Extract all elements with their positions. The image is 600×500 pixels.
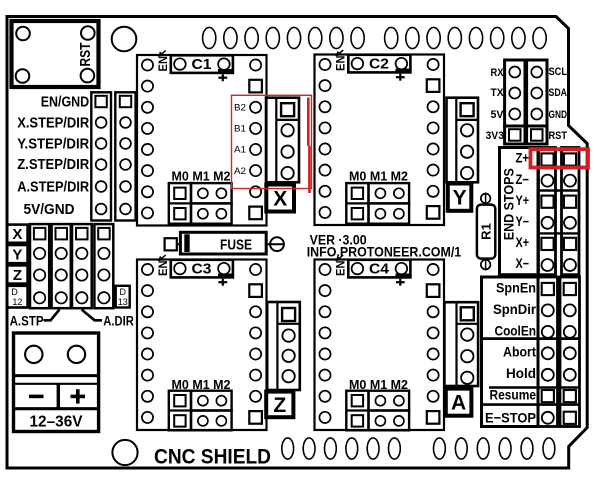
svg-text:GND: GND	[549, 109, 568, 121]
svg-text:12: 12	[12, 297, 22, 307]
svg-text:CoolEn: CoolEn	[495, 322, 537, 338]
svg-text:Z: Z	[13, 267, 22, 284]
svg-text:C1: C1	[192, 57, 212, 73]
svg-text:SDA: SDA	[549, 87, 568, 99]
svg-text:B1: B1	[234, 124, 246, 135]
svg-text:X: X	[12, 226, 22, 243]
svg-text:Abort: Abort	[503, 344, 536, 360]
svg-text:SpnEn: SpnEn	[496, 279, 536, 295]
svg-text:X: X	[273, 187, 287, 210]
svg-text:Hold: Hold	[506, 365, 536, 381]
svg-text:X+: X+	[516, 235, 530, 250]
svg-text:C2: C2	[369, 57, 389, 73]
svg-text:Y: Y	[453, 187, 467, 210]
svg-text:A.DIR: A.DIR	[103, 313, 134, 328]
svg-text:C4: C4	[369, 262, 389, 278]
svg-text:Resume: Resume	[490, 387, 537, 403]
svg-text:Y−: Y−	[516, 214, 530, 229]
svg-text:R1: R1	[479, 223, 494, 240]
svg-text:Z+: Z+	[516, 151, 530, 166]
svg-text:RST: RST	[77, 43, 94, 67]
svg-text:B2: B2	[234, 103, 246, 114]
svg-text:Z: Z	[273, 394, 286, 417]
svg-text:C3: C3	[192, 262, 212, 278]
svg-text:A.STEP/DIR: A.STEP/DIR	[17, 180, 89, 196]
svg-text:EN: EN	[336, 260, 348, 276]
svg-text:RST: RST	[549, 130, 568, 142]
svg-text:12–36V: 12–36V	[30, 413, 83, 430]
svg-text:INFO.PROTONEER.COM/1: INFO.PROTONEER.COM/1	[307, 244, 462, 260]
svg-text:D: D	[119, 287, 126, 297]
svg-text:Y: Y	[12, 246, 22, 263]
svg-text:5V/GND: 5V/GND	[24, 202, 75, 218]
svg-text:EN: EN	[158, 260, 170, 276]
svg-text:E−STOP: E−STOP	[485, 410, 536, 426]
svg-text:SCL: SCL	[549, 66, 568, 78]
svg-text:EN: EN	[158, 56, 170, 71]
svg-text:TX: TX	[491, 87, 505, 99]
svg-text:M0 M1 M2: M0 M1 M2	[349, 168, 408, 183]
svg-text:CNC SHIELD: CNC SHIELD	[154, 446, 271, 469]
svg-text:3V3: 3V3	[486, 130, 505, 142]
svg-text:Z.STEP/DIR: Z.STEP/DIR	[17, 157, 89, 173]
svg-text:Z−: Z−	[516, 172, 530, 187]
svg-text:X.STEP/DIR: X.STEP/DIR	[17, 116, 89, 132]
svg-text:13: 13	[118, 297, 128, 307]
svg-text:A.STP: A.STP	[10, 313, 44, 328]
svg-text:END STOPS: END STOPS	[501, 168, 517, 240]
svg-text:A1: A1	[234, 145, 246, 156]
svg-text:A2: A2	[234, 166, 246, 177]
svg-text:FUSE: FUSE	[220, 236, 252, 253]
svg-text:RX: RX	[491, 67, 505, 79]
svg-text:D: D	[11, 287, 18, 297]
svg-text:M0 M1 M2: M0 M1 M2	[172, 168, 231, 183]
svg-text:Y+: Y+	[516, 193, 530, 208]
svg-text:A: A	[451, 392, 466, 415]
svg-text:X−: X−	[516, 256, 530, 271]
svg-text:EN/GND: EN/GND	[41, 95, 90, 111]
svg-text:5V: 5V	[491, 109, 505, 121]
svg-text:Y.STEP/DIR: Y.STEP/DIR	[17, 136, 89, 152]
svg-text:SpnDir: SpnDir	[493, 301, 537, 317]
svg-text:EN: EN	[336, 55, 348, 70]
